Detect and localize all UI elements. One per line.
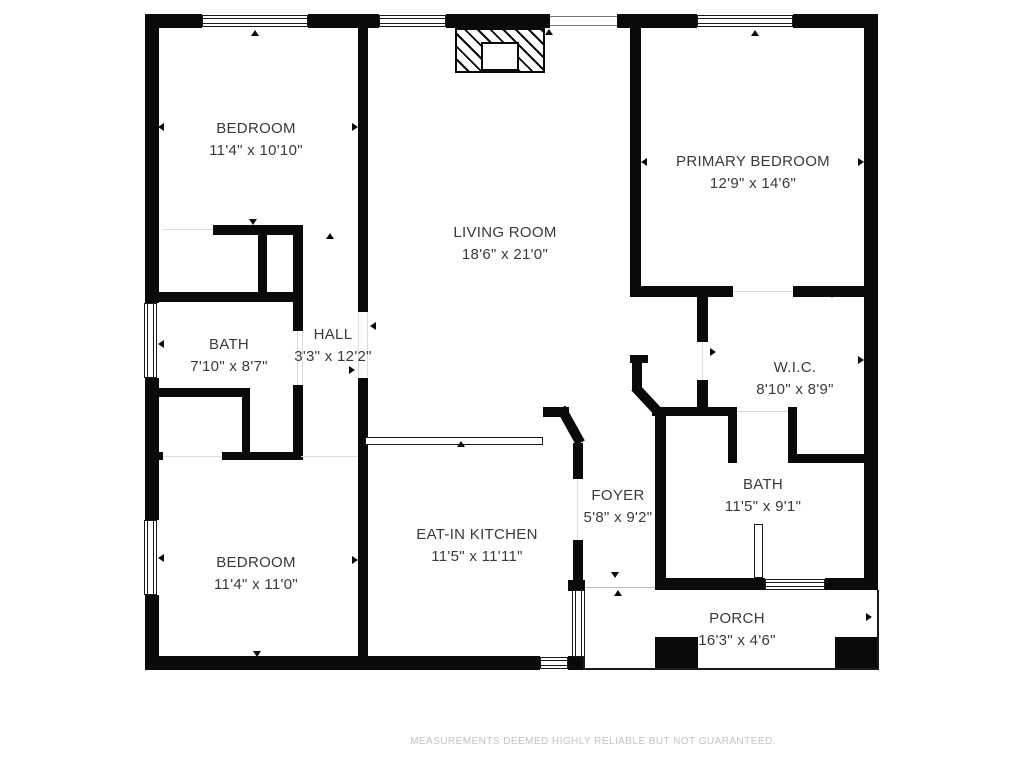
window — [572, 590, 585, 657]
room-name: BATH — [190, 334, 268, 356]
wall-segment — [573, 443, 583, 479]
door-marker-icon — [751, 30, 759, 36]
wall-segment — [573, 540, 583, 580]
door-marker-icon — [656, 536, 662, 544]
wall-segment — [222, 452, 300, 460]
room-label-hall: HALL 3'3" x 12'2" — [294, 324, 372, 368]
wall-segment — [788, 454, 867, 463]
room-dimensions: 11'5" x 11'11" — [416, 546, 537, 568]
door-marker-icon — [545, 29, 553, 35]
wall-segment — [655, 578, 765, 590]
window — [540, 657, 568, 669]
wall-segment — [152, 388, 250, 397]
wall-segment — [145, 14, 159, 303]
room-name: BATH — [725, 474, 801, 496]
room-dimensions: 3'3" x 12'2" — [294, 346, 372, 368]
door-marker-icon — [251, 30, 259, 36]
room-dimensions: 11'4" x 10'10" — [209, 140, 303, 162]
door-marker-icon — [253, 651, 261, 657]
door-marker-icon — [858, 158, 864, 166]
floor-plan: BEDROOM 11'4" x 10'10" LIVING ROOM 18'6"… — [0, 0, 1024, 768]
room-label-bath-1: BATH 7'10" x 8'7" — [190, 334, 268, 378]
porch-pillar — [835, 637, 878, 668]
wall-segment — [630, 286, 733, 297]
porch-outline — [583, 668, 879, 670]
door-marker-icon — [611, 572, 619, 578]
door-marker-icon — [457, 441, 465, 447]
door-threshold — [737, 411, 788, 412]
door-marker-icon — [249, 219, 257, 225]
door-threshold — [163, 456, 222, 457]
wall-segment — [213, 225, 303, 235]
room-name: LIVING ROOM — [453, 222, 556, 244]
room-name: HALL — [294, 324, 372, 346]
door-marker-icon — [326, 233, 334, 239]
wall-segment — [557, 406, 585, 446]
room-name: FOYER — [584, 485, 653, 507]
door-threshold — [702, 342, 703, 380]
room-label-foyer: FOYER 5'8" x 9'2" — [584, 485, 653, 529]
room-dimensions: 8'10" x 8'9" — [756, 379, 834, 401]
door-threshold — [733, 291, 793, 292]
door-threshold — [301, 456, 358, 457]
shower-divider — [754, 524, 763, 578]
room-dimensions: 12'9" x 14'6" — [676, 173, 830, 195]
room-label-living-room: LIVING ROOM 18'6" x 21'0" — [453, 222, 556, 266]
room-dimensions: 7'10" x 8'7" — [190, 356, 268, 378]
wall-segment — [697, 297, 708, 342]
room-label-bedroom-2: BEDROOM 11'4" x 11'0" — [214, 552, 298, 596]
room-dimensions: 18'6" x 21'0" — [453, 244, 556, 266]
porch-outline — [583, 657, 585, 669]
wall-segment — [630, 14, 641, 286]
door-marker-icon — [858, 356, 864, 364]
door-marker-icon — [641, 158, 647, 166]
room-label-wic: W.I.C. 8'10" x 8'9" — [756, 357, 834, 401]
wall-segment — [446, 14, 550, 28]
wall-segment — [655, 413, 666, 578]
door-marker-icon — [352, 123, 358, 131]
wall-segment — [825, 578, 878, 590]
room-label-bedroom-1: BEDROOM 11'4" x 10'10" — [209, 118, 303, 162]
wall-segment — [242, 388, 250, 460]
wall-segment — [358, 378, 368, 656]
wall-segment — [568, 656, 583, 670]
wall-segment — [145, 378, 159, 520]
wall-segment — [358, 14, 368, 312]
porch-pillar — [655, 637, 698, 668]
door-marker-icon — [614, 590, 622, 596]
door-marker-icon — [158, 554, 164, 562]
door-threshold — [163, 229, 213, 230]
wall-segment — [293, 385, 303, 460]
window — [202, 15, 308, 27]
door-marker-icon — [158, 340, 164, 348]
porch-outline — [585, 587, 655, 588]
window — [765, 579, 825, 590]
room-dimensions: 16'3" x 4'6" — [698, 630, 776, 652]
room-dimensions: 11'4" x 11'0" — [214, 574, 298, 596]
room-name: BEDROOM — [209, 118, 303, 140]
door-threshold — [577, 479, 578, 540]
wall-opening — [550, 16, 617, 26]
wall-segment — [145, 292, 298, 302]
window — [697, 15, 793, 27]
room-name: PRIMARY BEDROOM — [676, 151, 830, 173]
door-marker-icon — [352, 556, 358, 564]
room-dimensions: 5'8" x 9'2" — [584, 507, 653, 529]
wall-segment — [293, 225, 303, 331]
porch-outline — [877, 590, 879, 670]
wall-segment — [308, 14, 379, 28]
wall-segment — [152, 452, 163, 460]
room-name: W.I.C. — [756, 357, 834, 379]
door-marker-icon — [866, 613, 872, 621]
wall-segment — [617, 14, 697, 28]
fireplace-firebox — [481, 42, 519, 71]
room-label-primary-bedroom: PRIMARY BEDROOM 12'9" x 14'6" — [676, 151, 830, 195]
window — [144, 520, 157, 595]
door-marker-icon — [158, 123, 164, 131]
room-dimensions: 11'5" x 9'1" — [725, 496, 801, 518]
wall-segment — [258, 235, 267, 292]
door-marker-icon — [828, 292, 836, 298]
window — [379, 15, 446, 27]
door-marker-icon — [829, 454, 837, 460]
wall-segment — [145, 656, 540, 670]
door-marker-icon — [710, 348, 716, 356]
room-name: PORCH — [698, 608, 776, 630]
disclaimer-text: MEASUREMENTS DEEMED HIGHLY RELIABLE BUT … — [410, 736, 776, 747]
room-label-eat-in-kitchen: EAT-IN KITCHEN 11'5" x 11'11" — [416, 524, 537, 568]
room-name: EAT-IN KITCHEN — [416, 524, 537, 546]
room-label-porch: PORCH 16'3" x 4'6" — [698, 608, 776, 652]
room-name: BEDROOM — [214, 552, 298, 574]
room-label-bath-2: BATH 11'5" x 9'1" — [725, 474, 801, 518]
kitchen-counter — [365, 437, 543, 445]
fireplace — [455, 28, 545, 73]
wall-segment — [697, 380, 708, 410]
wall-segment — [864, 14, 878, 590]
wall-segment — [728, 413, 737, 463]
window — [144, 303, 157, 378]
